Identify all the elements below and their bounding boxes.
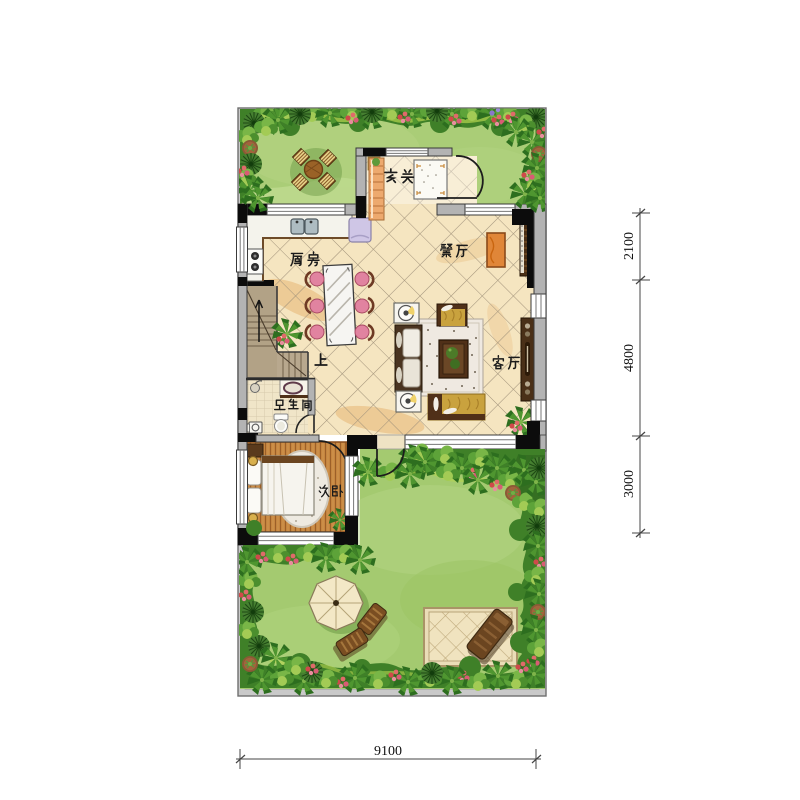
svg-text:3000: 3000 [622, 470, 637, 498]
svg-text:4800: 4800 [622, 344, 637, 372]
svg-text:9100: 9100 [374, 744, 402, 759]
svg-text:2100: 2100 [622, 232, 637, 260]
